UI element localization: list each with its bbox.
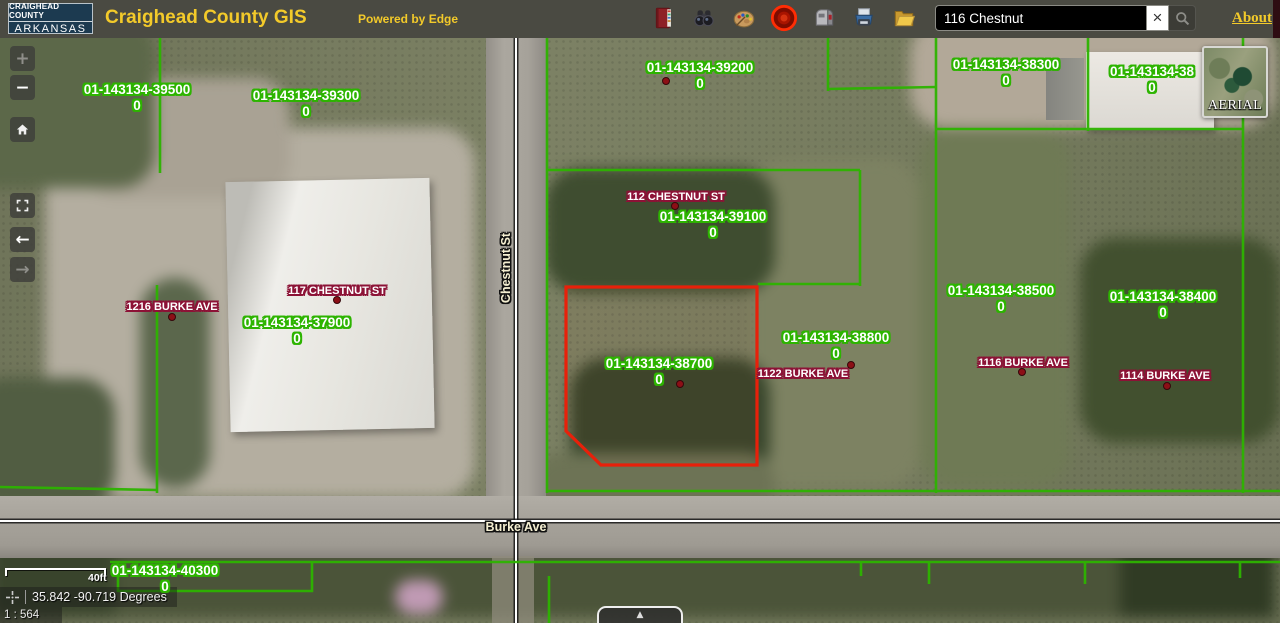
road-south-stub <box>492 556 534 623</box>
zoom-in-button[interactable]: + <box>10 46 35 71</box>
basemap-toggle[interactable]: AERIAL <box>1202 46 1268 118</box>
find-binoculars-button[interactable] <box>690 4 718 32</box>
forward-arrow-icon: → <box>15 260 29 280</box>
coords-divider <box>25 590 26 604</box>
search-input[interactable] <box>935 5 1146 31</box>
previous-extent-button[interactable]: ← <box>10 227 35 252</box>
crosshair-icon <box>6 591 19 604</box>
gis-application: CRAIGHEAD COUNTY ARKANSAS Craighead Coun… <box>0 0 1280 623</box>
clear-search-button[interactable]: × <box>1146 5 1169 31</box>
printer-icon <box>851 5 877 31</box>
print-button[interactable] <box>850 4 878 32</box>
target-icon <box>770 4 798 32</box>
layers-book-button[interactable] <box>650 4 678 32</box>
logo-county-text: CRAIGHEAD COUNTY <box>9 2 92 22</box>
logo-state-text: ARKANSAS <box>15 23 87 35</box>
mailbox-icon <box>811 5 837 31</box>
search-group: × <box>935 5 1196 31</box>
coordinates-widget: 35.842 -90.719 Degrees <box>0 587 177 607</box>
coordinates-readout: 35.842 -90.719 Degrees <box>32 590 167 604</box>
app-header: CRAIGHEAD COUNTY ARKANSAS Craighead Coun… <box>0 0 1280 38</box>
map-canvas[interactable] <box>0 38 1280 623</box>
palette-icon <box>731 5 757 31</box>
toolbar <box>650 4 918 32</box>
fullscreen-button[interactable] <box>10 193 35 218</box>
scale-bar-label: 40ft <box>88 572 107 584</box>
search-icon <box>1174 10 1191 27</box>
header-edge-strip <box>1273 0 1280 38</box>
chestnut-centerline <box>515 38 517 623</box>
back-arrow-icon: ← <box>15 230 29 250</box>
panel-expander-button[interactable]: ▲ <box>597 606 683 623</box>
basemap-label: AERIAL <box>1204 98 1266 114</box>
burke-avenue-road <box>0 496 1280 558</box>
draw-palette-button[interactable] <box>730 4 758 32</box>
zoom-out-button[interactable]: − <box>10 75 35 100</box>
building-top-right <box>1086 52 1214 130</box>
warehouse-building <box>225 178 434 432</box>
mail-mailbox-button[interactable] <box>810 4 838 32</box>
identify-target-button[interactable] <box>770 4 798 32</box>
red-book-icon <box>651 5 677 31</box>
plus-icon: + <box>15 49 29 69</box>
burke-centerline <box>0 520 1280 522</box>
scale-ratio: 1 : 564 <box>0 607 62 623</box>
folder-icon <box>891 5 917 31</box>
next-extent-button[interactable]: → <box>10 257 35 282</box>
powered-by-text: Powered by Edge <box>358 12 458 26</box>
page-title: Craighead County GIS <box>105 7 307 29</box>
about-link[interactable]: About <box>1232 10 1272 27</box>
fullscreen-icon <box>15 198 30 213</box>
search-button[interactable] <box>1169 5 1196 31</box>
home-icon <box>15 122 30 137</box>
gray-structures <box>1046 58 1084 120</box>
home-button[interactable] <box>10 117 35 142</box>
open-folder-button[interactable] <box>890 4 918 32</box>
minus-icon: − <box>15 78 29 98</box>
county-logo: CRAIGHEAD COUNTY ARKANSAS <box>8 3 93 34</box>
binoculars-icon <box>691 5 717 31</box>
